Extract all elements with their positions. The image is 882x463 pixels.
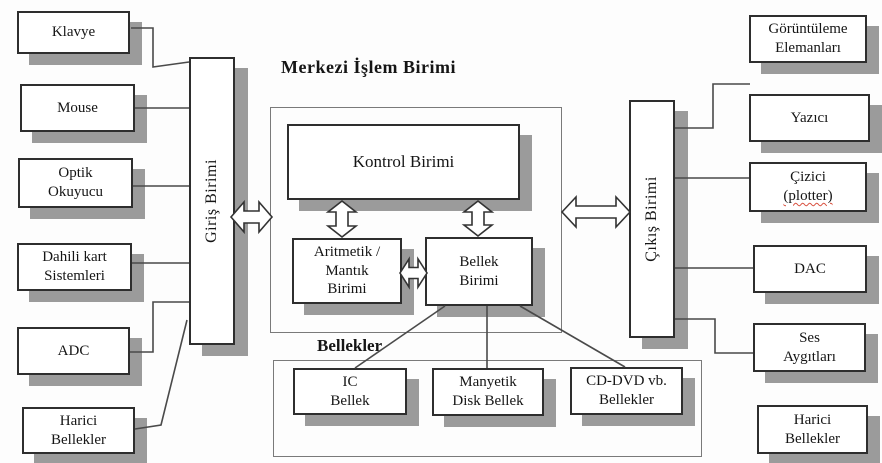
unit-box-bellek-birimi: Bellek Birimi (425, 237, 533, 306)
unit-box-cikis-birimi: Çıkış Birimi (629, 100, 675, 338)
memory-box-ic-bellek-label: IC Bellek (330, 373, 369, 411)
output-box-goruntuleme-elemanlari-label: Görüntüleme Elemanları (768, 20, 847, 58)
output-box-dac: DAC (753, 245, 867, 293)
unit-box-bellek-birimi-label: Bellek Birimi (459, 253, 498, 291)
output-box-dac-label: DAC (794, 260, 826, 279)
diagram-canvas: Merkezi İşlem Birimi Bellekler Klavye Mo… (0, 0, 882, 463)
output-box-cizici-plotter-label: Çizici (plotter) (783, 168, 832, 206)
input-box-klavye-label: Klavye (52, 23, 95, 42)
wire-cikis-ses (675, 319, 753, 353)
input-box-klavye: Klavye (17, 11, 130, 54)
input-box-adc: ADC (17, 327, 130, 375)
memories-section-label: Bellekler (317, 336, 382, 356)
memory-box-cd-dvd: CD-DVD vb. Bellekler (570, 367, 683, 415)
output-box-harici-bellekler-label: Harici Bellekler (785, 411, 840, 449)
wire-adc-giris (130, 302, 189, 352)
input-box-dahili-kart-label: Dahili kart Sistemleri (42, 248, 107, 286)
output-box-harici-bellekler: Harici Bellekler (757, 405, 868, 454)
input-box-optik-okuyucu-label: Optik Okuyucu (48, 164, 103, 202)
memory-box-ic-bellek: IC Bellek (293, 368, 407, 415)
unit-box-kontrol-birimi-label: Kontrol Birimi (353, 151, 455, 172)
unit-box-aritmetik-mantik-birimi-label: Aritmetik / Mantık Birimi (314, 243, 380, 299)
unit-box-giris-birimi: Giriş Birimi (189, 57, 235, 345)
input-box-harici-bellekler: Harici Bellekler (22, 407, 135, 454)
diagram-title: Merkezi İşlem Birimi (281, 57, 456, 78)
arrow-giris-cpu (231, 202, 272, 232)
cizici-line2-spellcheck: (plotter) (783, 187, 832, 206)
unit-box-aritmetik-mantik-birimi: Aritmetik / Mantık Birimi (292, 238, 402, 304)
input-box-mouse-label: Mouse (57, 99, 98, 118)
memory-box-manyetik-disk-label: Manyetik Disk Bellek (452, 373, 523, 411)
wire-klavye-giris (131, 28, 189, 67)
memory-box-cd-dvd-label: CD-DVD vb. Bellekler (586, 372, 667, 410)
output-box-ses-aygitlari-label: Ses Aygıtları (783, 329, 836, 367)
output-box-goruntuleme-elemanlari: Görüntüleme Elemanları (749, 15, 867, 63)
unit-box-cikis-birimi-label: Çıkış Birimi (643, 176, 661, 262)
wire-harici-giris (135, 320, 187, 429)
input-box-harici-bellekler-label: Harici Bellekler (51, 412, 106, 450)
input-box-dahili-kart: Dahili kart Sistemleri (17, 243, 132, 291)
arrow-cpu-cikis (562, 197, 630, 227)
wire-cikis-yazici (675, 84, 750, 128)
output-box-yazici: Yazıcı (749, 94, 870, 142)
unit-box-kontrol-birimi: Kontrol Birimi (287, 124, 520, 200)
cizici-line1: Çizici (790, 168, 826, 187)
output-box-yazici-label: Yazıcı (791, 109, 829, 128)
input-box-mouse: Mouse (20, 84, 135, 132)
memory-box-manyetik-disk: Manyetik Disk Bellek (432, 368, 544, 416)
unit-box-giris-birimi-label: Giriş Birimi (203, 159, 221, 243)
output-box-ses-aygitlari: Ses Aygıtları (753, 323, 866, 372)
input-box-optik-okuyucu: Optik Okuyucu (18, 158, 133, 208)
input-box-adc-label: ADC (58, 342, 90, 361)
output-box-cizici-plotter: Çizici (plotter) (749, 162, 867, 212)
